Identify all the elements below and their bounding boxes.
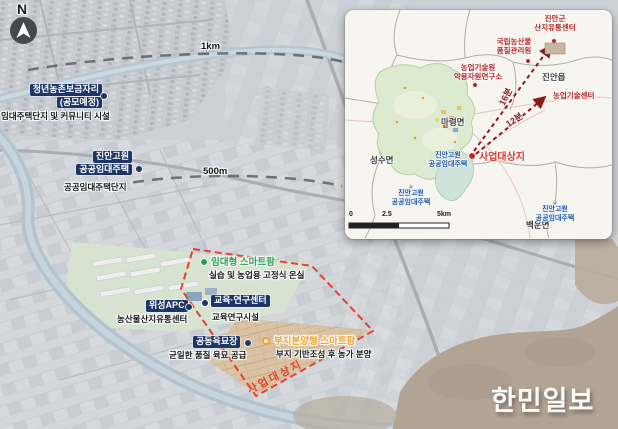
inset-site-housing-line2: 공공임대주택 <box>422 161 474 170</box>
gowon-housing-dot <box>136 166 142 172</box>
housing-sw-line2: 공공임대주택 <box>385 199 437 208</box>
town-seongsu-myeon: 성수면 <box>370 154 393 166</box>
gowon-housing-label-line1: 진안고원 <box>93 151 132 163</box>
edu-research-subtext: 교육연구시설 <box>212 311 259 323</box>
poi-sanji-center: 진안군 산지유통센터 <box>526 14 584 33</box>
poi-herb-line2: 약용자원연구소 <box>449 72 507 81</box>
rental-smartfarm-label: 임대형 스마트팜 <box>211 254 275 268</box>
poi-herb-line1: 농업기술원 <box>449 63 507 72</box>
satellite-apc-subtext: 농산물산지유통센터 <box>117 313 187 325</box>
housing-label-southeast: 진안고원 공공임대주택 <box>529 206 581 224</box>
site-photo-chip <box>545 43 565 54</box>
poi-herb-institute: 농업기술원 약용자원연구소 <box>449 63 507 82</box>
satellite-apc-label: 위성APC <box>146 300 188 312</box>
scalebar-end: 5km <box>437 211 451 218</box>
inset-site-label: 사업대상지 <box>479 148 525 163</box>
poi-agri-tech-center: 농업기술센터 <box>553 91 594 100</box>
youth-housing-subtext: 임대주택단지 및 커뮤니티 시설 <box>1 110 110 122</box>
inset-locator-map: 진안군 산지유통센터 국립농산물 품질관리원 농업기술원 약용자원연구소 농업기… <box>345 10 612 239</box>
poi-quality-agency: 국립농산물 품질관리원 <box>492 37 536 56</box>
rental-smartfarm-subtext: 실습 및 농업용 고정식 온실 <box>209 269 304 281</box>
scalebar-zero: 0 <box>349 211 353 218</box>
edu-research-label: 교육·연구센터 <box>211 295 270 307</box>
satellite-apc-dot <box>186 304 192 310</box>
lot-sale-smartfarm-subtext: 부지 기반조성 후 농가 분양 <box>276 348 371 360</box>
housing-se-line2: 공공임대주택 <box>529 215 581 224</box>
joint-nursery-subtext: 균일한 품질 육묘 공급 <box>169 349 246 361</box>
distance-label-1km: 1km <box>201 41 220 52</box>
town-jinan-eup: 진안읍 <box>542 71 565 83</box>
inset-site-housing-label: 진안고원 공공임대주택 <box>422 152 474 170</box>
marker-youth-housing: 청년농촌보금자리 (공모예정) <box>30 84 102 108</box>
town-maryeong-myeon: 마령면 <box>441 116 464 128</box>
gowon-housing-label-line2: 공공임대주택 <box>76 164 132 176</box>
housing-label-southwest: 진안고원 공공임대주택 <box>385 190 437 208</box>
poi-sanji-line2: 산지유통센터 <box>526 23 584 32</box>
youth-housing-dot <box>101 93 107 99</box>
edu-research-dot <box>202 300 208 306</box>
distance-label-500m: 500m <box>203 166 227 177</box>
youth-housing-label-line2: (공모예정) <box>57 97 102 109</box>
news-aerial-map: N 1km 500m 청년농촌보금자리 (공모예정) 임대주택단지 및 커뮤니티… <box>0 0 618 429</box>
inset-scalebar <box>349 223 449 228</box>
joint-nursery-label: 공동육묘장 <box>193 336 240 348</box>
marker-gowon-housing: 진안고원 공공임대주택 <box>66 151 132 175</box>
compass-north-label: N <box>17 1 27 17</box>
gowon-housing-subtext: 공공임대주택단지 <box>64 181 127 193</box>
inset-site-housing-line1: 진안고원 <box>422 152 474 161</box>
scalebar-mid: 2.5 <box>382 211 392 218</box>
poi-quality-line1: 국립농산물 <box>492 37 536 46</box>
joint-nursery-dot <box>245 340 251 346</box>
poi-quality-line2: 품질관리원 <box>492 46 536 55</box>
poi-sanji-line1: 진안군 <box>526 14 584 23</box>
newspaper-watermark: 한민일보 <box>491 379 594 418</box>
lot-sale-smartfarm-ring-dot <box>262 337 270 345</box>
housing-se-line1: 진안고원 <box>529 206 581 215</box>
north-arrow-icon <box>10 17 37 44</box>
rental-smartfarm-dot <box>201 259 207 265</box>
compass-icon <box>10 17 37 44</box>
youth-housing-label-line1: 청년농촌보금자리 <box>30 84 102 96</box>
lot-sale-smartfarm-label: 부지분양형 스마트팜 <box>274 333 355 347</box>
housing-sw-line1: 진안고원 <box>385 190 437 199</box>
